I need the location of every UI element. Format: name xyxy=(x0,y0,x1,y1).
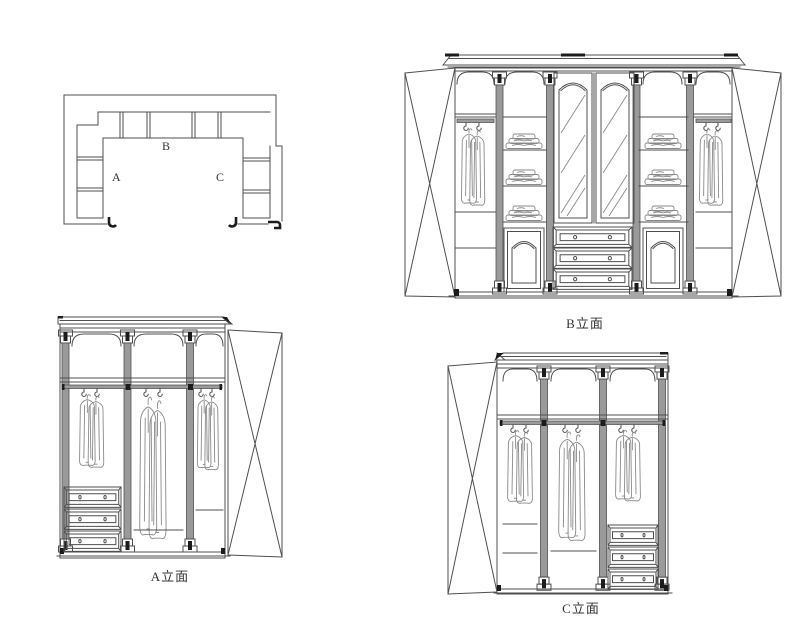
elevation-b-mirror-doors xyxy=(554,73,634,223)
wardrobe-drawings xyxy=(0,0,800,628)
elevation-a xyxy=(57,316,282,558)
elevation-c xyxy=(448,352,672,594)
plan-cabinet-outline xyxy=(77,112,270,218)
elevation-b-side-panel-left xyxy=(405,68,455,297)
elevation-c-drawer-stack xyxy=(608,525,658,589)
elevation-c-label: C立面 xyxy=(531,598,631,617)
plan-label-a: A xyxy=(112,170,122,185)
elevation-a-clothes-right xyxy=(196,389,223,510)
elevation-b-shelf-column-left xyxy=(503,117,546,292)
elevation-b-drawer-stack xyxy=(553,227,632,289)
elevation-b-side-panel-right xyxy=(732,68,781,297)
plan-door-stop-icon xyxy=(109,217,280,228)
elevation-c-clothes-middle xyxy=(551,425,596,551)
elevation-c-clothes-right xyxy=(616,425,641,501)
elevation-a-hanging-rail xyxy=(60,378,225,390)
elevation-c-side-panel-left xyxy=(448,362,497,594)
plan-view xyxy=(64,95,282,228)
elevation-b-shelf-column-right xyxy=(639,117,688,292)
plan-label-c: C xyxy=(216,170,225,185)
elevation-b-label: B立面 xyxy=(535,313,635,332)
elevation-b xyxy=(405,54,781,299)
elevation-a-side-panel-right xyxy=(228,330,282,557)
elevation-c-hanging-rail xyxy=(497,415,668,426)
elevation-a-clothes-left xyxy=(80,389,104,467)
cad-sheet: A B C B立面 A立面 C立面 xyxy=(0,0,800,628)
elevation-a-drawer-stack xyxy=(64,487,121,551)
elevation-a-clothes-middle xyxy=(134,389,183,539)
elevation-c-clothes-left xyxy=(503,425,537,553)
plan-label-b: B xyxy=(162,139,171,154)
elevation-a-cornice xyxy=(58,316,232,324)
elevation-c-cornice xyxy=(495,352,668,360)
elevation-b-cornice xyxy=(443,54,745,68)
elevation-b-hanging-left xyxy=(455,114,496,248)
elevation-a-label: A立面 xyxy=(120,566,220,585)
elevation-b-hanging-right xyxy=(694,114,732,248)
